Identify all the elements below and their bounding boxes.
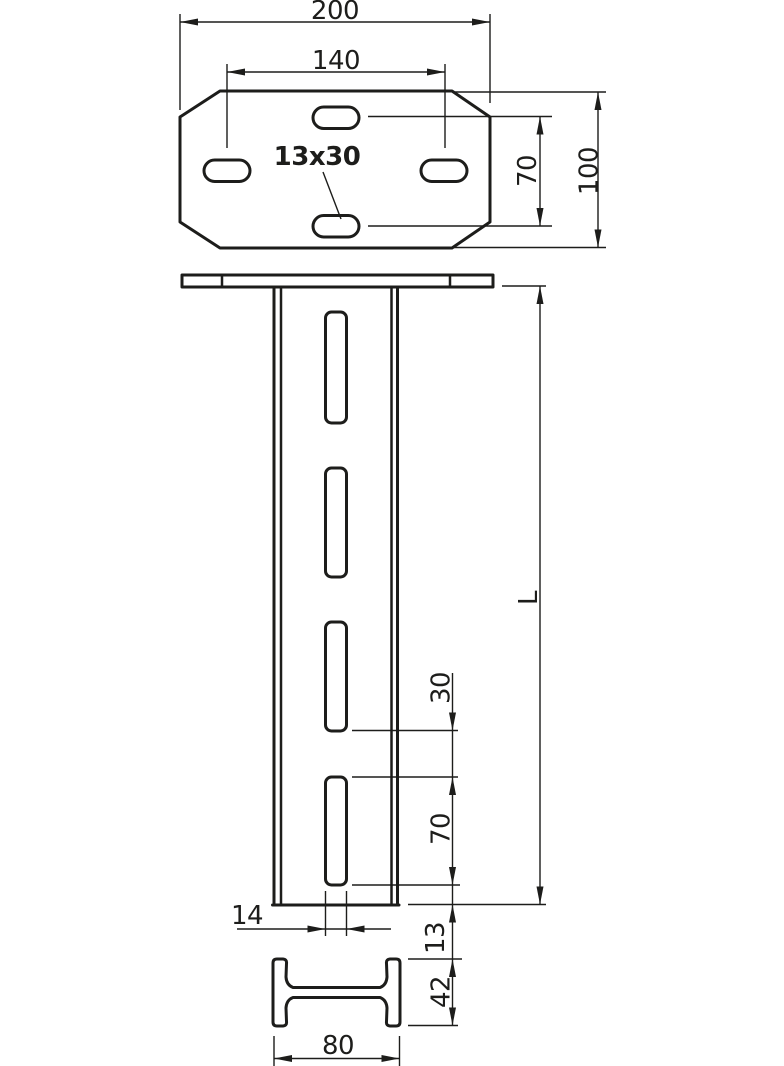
dim-plate-depth-label: 100 xyxy=(575,147,605,195)
front-view: L 30 70 13 14 xyxy=(182,275,546,959)
dim-slot-gap-label: 30 xyxy=(427,672,457,704)
slot-left xyxy=(204,160,250,182)
arrowhead-right xyxy=(472,19,490,26)
dim-slot-width: 14 xyxy=(231,891,391,936)
slot-top-center xyxy=(313,107,359,129)
arrowhead-left xyxy=(274,1055,292,1062)
arrowhead-right xyxy=(382,1055,400,1062)
arrowhead-down xyxy=(449,713,456,731)
dim-slot-spacing-horizontal: 140 xyxy=(227,46,445,148)
section-view: 42 80 xyxy=(273,959,462,1066)
dim-post-length-label: L xyxy=(514,590,544,605)
arrowhead-down xyxy=(449,867,456,885)
drawing-svg: 13x30 200 140 70 xyxy=(0,0,784,1066)
i-beam-profile xyxy=(273,959,400,1026)
slot-size-label: 13x30 xyxy=(274,142,361,172)
dim-slot-end-offset: 13 xyxy=(421,905,456,955)
arrowhead-right-in xyxy=(308,926,326,933)
dim-plate-width-label: 200 xyxy=(311,0,359,26)
slot-bottom-center xyxy=(313,216,359,238)
arrowhead-down xyxy=(537,208,544,226)
dim-profile-width: 80 xyxy=(274,1031,400,1066)
arrowhead-up xyxy=(449,777,456,795)
dim-slot-width-label: 14 xyxy=(231,901,263,931)
slot-size-leader-line xyxy=(323,172,341,219)
top-view: 13x30 200 140 70 xyxy=(180,0,606,248)
arrowhead-up xyxy=(537,286,544,304)
dim-profile-height: 42 xyxy=(408,959,462,1026)
arrowhead-left-in xyxy=(347,926,365,933)
arrowhead-right xyxy=(427,69,445,76)
arrowhead-down xyxy=(449,1008,456,1026)
arrowhead-up xyxy=(449,959,456,977)
dim-profile-height-label: 42 xyxy=(427,976,457,1008)
arrowhead-down xyxy=(537,887,544,905)
dim-slot-length-label: 70 xyxy=(427,813,457,845)
arrowhead-left xyxy=(180,19,198,26)
extension-line xyxy=(352,731,458,778)
arrowhead-up xyxy=(537,117,544,135)
arrowhead-up xyxy=(449,905,456,923)
post-slot-4 xyxy=(326,777,347,885)
post-inner-edges xyxy=(281,287,392,904)
arrowhead-down xyxy=(595,230,602,248)
dim-slot-spacing-vertical-label: 70 xyxy=(513,155,543,187)
dim-slot-end-offset-label: 13 xyxy=(421,922,451,954)
slot-right xyxy=(421,160,467,182)
dim-post-length: L xyxy=(408,286,546,905)
dim-slot-spacing-horizontal-label: 140 xyxy=(312,46,360,76)
post-outer-edges xyxy=(273,287,400,905)
post-slot-1 xyxy=(326,312,347,423)
dim-slot-gap: 30 xyxy=(352,672,458,795)
dim-slot-spacing-vertical: 70 xyxy=(368,117,552,227)
head-plate-edge xyxy=(182,275,493,287)
arrowhead-left xyxy=(227,69,245,76)
post-slot-2 xyxy=(326,468,347,577)
arrowhead-up xyxy=(595,92,602,110)
dim-profile-width-label: 80 xyxy=(322,1031,354,1061)
dim-slot-length: 70 xyxy=(352,813,460,885)
post-slot-3 xyxy=(326,622,347,731)
head-plate-chamfer-seams xyxy=(222,275,450,287)
technical-drawing: 13x30 200 140 70 xyxy=(0,0,784,1066)
